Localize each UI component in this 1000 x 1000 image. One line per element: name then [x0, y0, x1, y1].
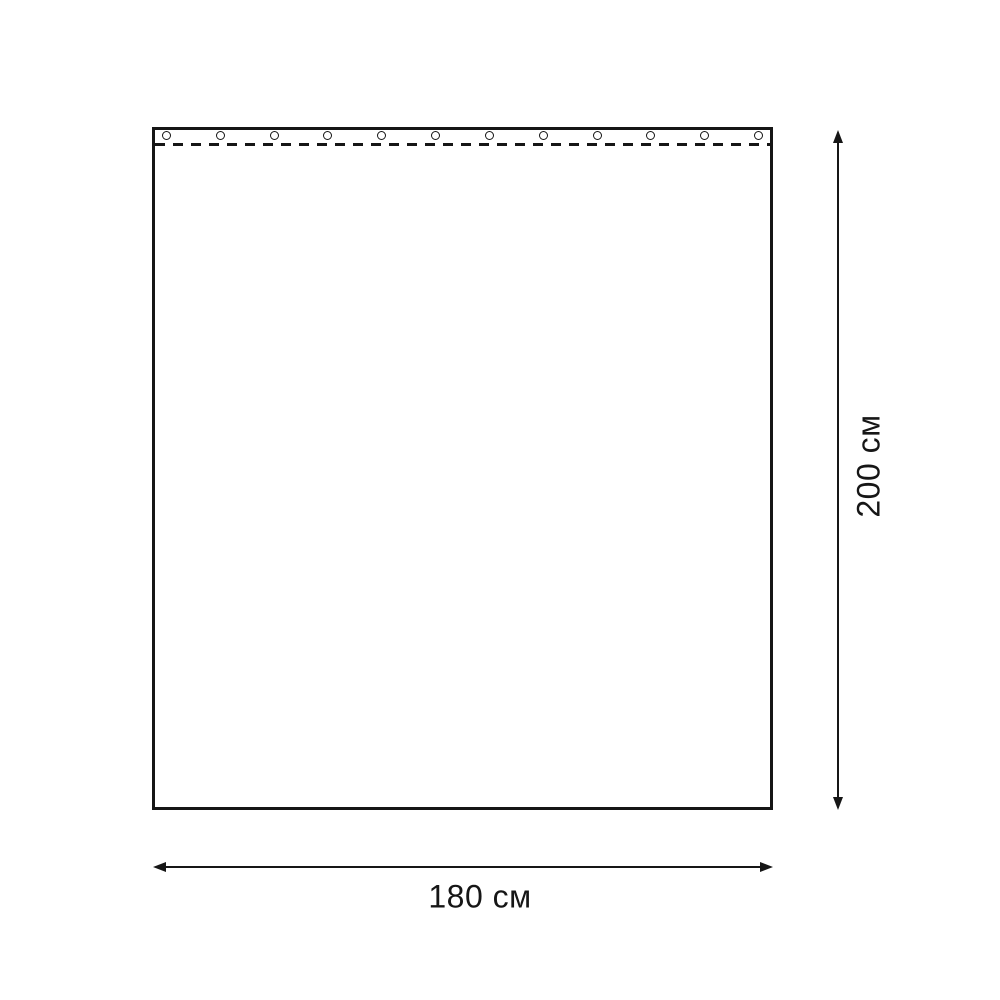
grommet-icon: [431, 131, 440, 140]
width-dimension-shaft: [164, 866, 762, 869]
arrow-right-icon: [760, 862, 773, 872]
grommet-icon: [162, 131, 171, 140]
grommet-icon: [593, 131, 602, 140]
arrow-down-icon: [833, 797, 843, 810]
stitch-line: [155, 143, 770, 146]
grommet-icon: [700, 131, 709, 140]
grommet-icon: [539, 131, 548, 140]
grommet-icon: [377, 131, 386, 140]
grommet-icon: [323, 131, 332, 140]
grommet-icon: [754, 131, 763, 140]
curtain-panel: [152, 127, 773, 810]
grommet-icon: [646, 131, 655, 140]
grommet-icon: [485, 131, 494, 140]
height-dimension-shaft: [837, 141, 840, 799]
grommet-row: [155, 131, 770, 140]
grommet-icon: [270, 131, 279, 140]
grommet-icon: [216, 131, 225, 140]
width-dimension-label: 180 см: [428, 879, 531, 916]
height-dimension-label: 200 см: [851, 414, 888, 517]
